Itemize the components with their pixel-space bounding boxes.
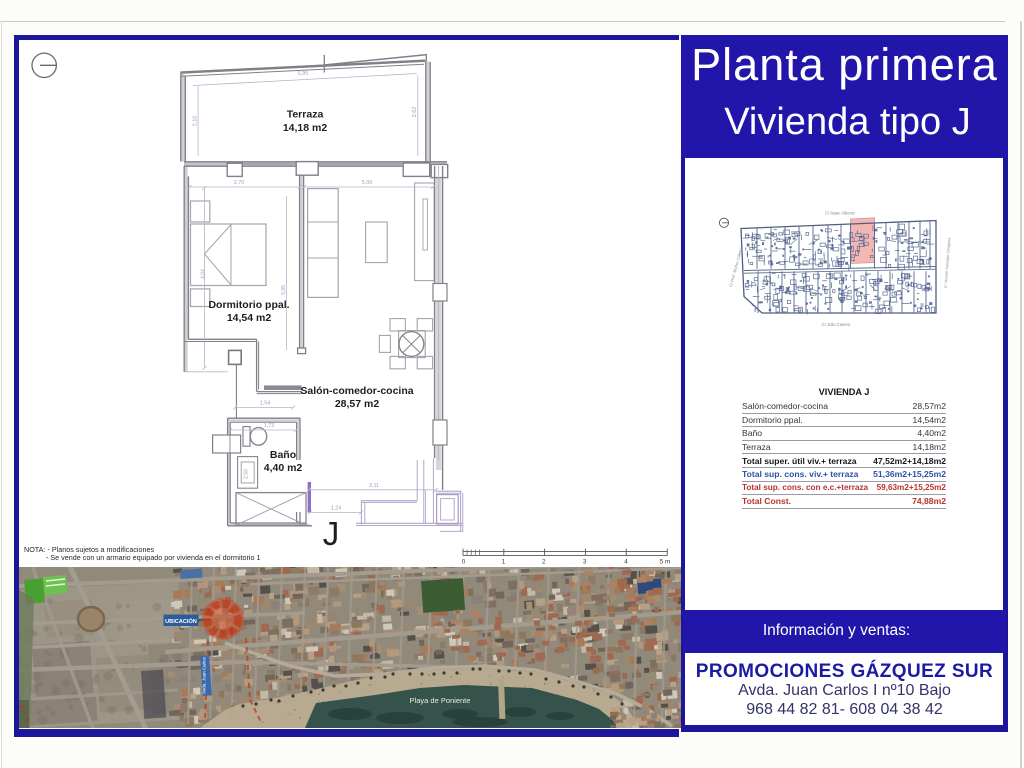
svg-text:C/ Julio Casero: C/ Julio Casero — [822, 322, 851, 327]
svg-text:C/ Vicente Salvador Zaragoza: C/ Vicente Salvador Zaragoza — [944, 237, 952, 289]
svg-text:C/ Isaac Albeniz: C/ Isaac Albeniz — [825, 211, 855, 216]
svg-text:C/ Prof. Muñoz Calero: C/ Prof. Muñoz Calero — [728, 247, 743, 287]
